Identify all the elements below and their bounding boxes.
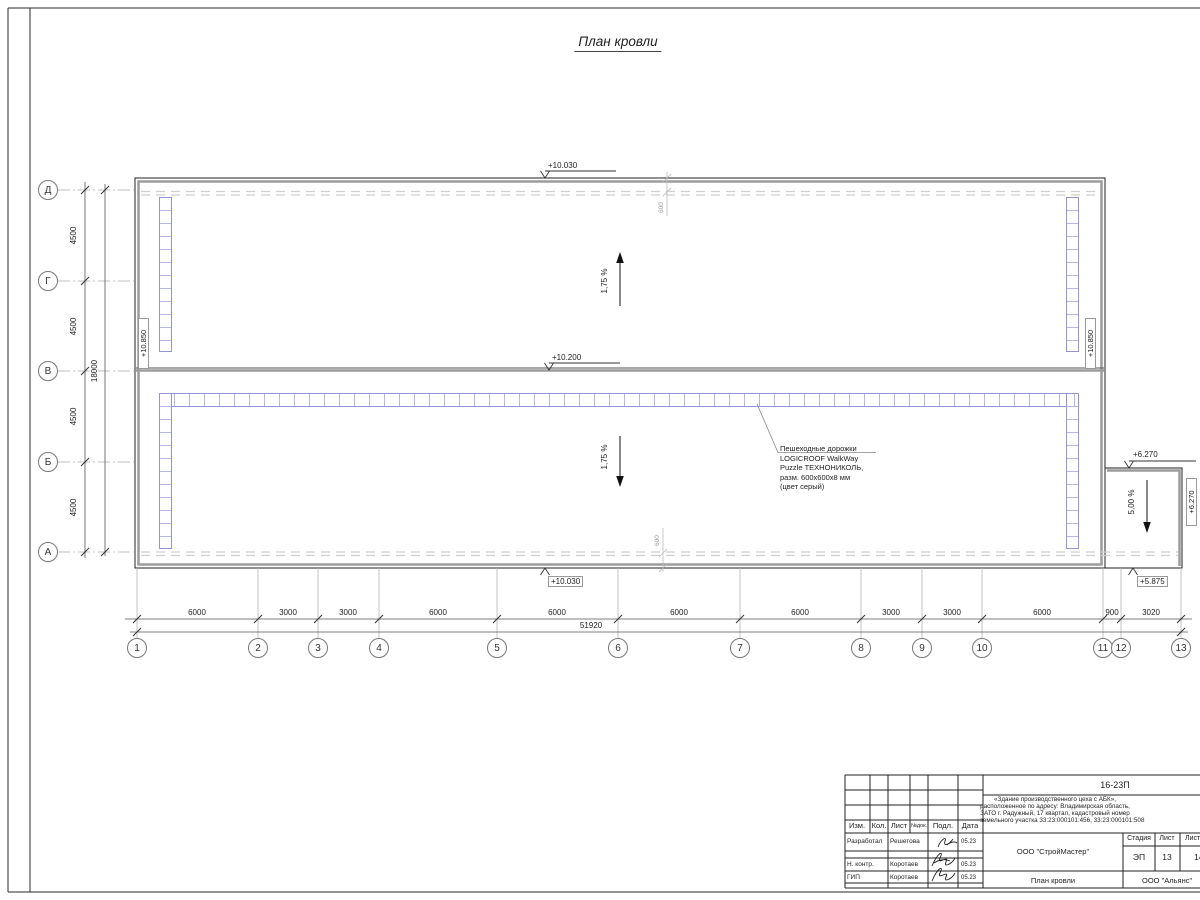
project-description: «Здание производственного цеха с АБК», р… bbox=[980, 796, 1130, 824]
elevation-label-bottom: +10.030 bbox=[548, 576, 583, 587]
tb-date: 05.23 bbox=[961, 839, 976, 845]
grid-bubble-b: Б bbox=[38, 452, 58, 472]
tb-role: ГИП bbox=[847, 874, 860, 881]
walkway-strip-lower-left bbox=[159, 393, 172, 549]
grid-bubble-a: А bbox=[38, 542, 58, 562]
annotation-line: LOGICROOF WalkWay bbox=[780, 454, 863, 464]
grid-bubble-9: 9 bbox=[912, 638, 932, 658]
dimension-label: 6000 bbox=[188, 608, 206, 617]
elevation-label-right: +10.850 bbox=[1085, 318, 1096, 369]
tb-sheet-title: План кровли bbox=[1031, 876, 1075, 885]
tb-header-ndoc: №док. bbox=[911, 823, 927, 829]
grid-bubble-3: 3 bbox=[308, 638, 328, 658]
tb-org: ООО "СтройМастер" bbox=[1017, 847, 1089, 856]
tb-date: 05.23 bbox=[961, 875, 976, 881]
tb-role: Разработал bbox=[847, 838, 882, 845]
grid-bubble-g: Г bbox=[38, 271, 58, 291]
tb-sheet-value: 13 bbox=[1162, 852, 1171, 862]
signature-korotaev-1 bbox=[932, 853, 955, 866]
walkway-strip-upper-left bbox=[159, 197, 172, 352]
grid-bubble-v: В bbox=[38, 361, 58, 381]
dimension-label: 6000 bbox=[429, 608, 447, 617]
elevation-label-ridge: +10.200 bbox=[552, 353, 581, 362]
tb-name: Решетова bbox=[890, 838, 920, 845]
grid-bubble-1: 1 bbox=[127, 638, 147, 658]
slope-label-annex: 5,00 % bbox=[1127, 481, 1136, 523]
grid-bubble-11: 11 bbox=[1093, 638, 1113, 658]
tb-sheets-value: 14 bbox=[1194, 852, 1200, 862]
grid-bubble-d: Д bbox=[38, 180, 58, 200]
tb-header-list: Лист bbox=[891, 821, 907, 830]
grid-bubble-8: 8 bbox=[851, 638, 871, 658]
grid-bubble-6: 6 bbox=[608, 638, 628, 658]
page-title: План кровли bbox=[574, 34, 661, 52]
walkway-annotation: Пешеходные дорожки LOGICROOF WalkWay Puz… bbox=[780, 444, 863, 492]
dimension-label: 4500 bbox=[69, 394, 78, 439]
dimension-label: 4500 bbox=[69, 213, 78, 258]
grid-bubble-4: 4 bbox=[369, 638, 389, 658]
dimension-label: 6000 bbox=[670, 608, 688, 617]
tb-sheets-label: Листов bbox=[1185, 835, 1200, 842]
dimension-label: 3000 bbox=[882, 608, 900, 617]
walkway-strip-lower-horizontal bbox=[159, 393, 1079, 407]
dimension-label: 6000 bbox=[548, 608, 566, 617]
grid-bubble-10: 10 bbox=[972, 638, 992, 658]
grid-bubble-13: 13 bbox=[1171, 638, 1191, 658]
grid-bubble-2: 2 bbox=[248, 638, 268, 658]
signature-korotaev-2 bbox=[932, 868, 955, 881]
annotation-line: Puzzle ТЕХНОНИКОЛЬ, bbox=[780, 463, 863, 473]
grid-bubble-12: 12 bbox=[1111, 638, 1131, 658]
tb-stage-label: Стадия bbox=[1127, 835, 1151, 842]
signature-reshetova bbox=[938, 839, 957, 847]
walkway-strip-lower-right bbox=[1066, 393, 1079, 549]
dimension-total-label: 18000 bbox=[90, 346, 99, 396]
roof-plan-sheet: План кровли 1 2 3 4 5 6 7 8 9 10 11 12 1… bbox=[0, 0, 1200, 900]
tb-date: 05.23 bbox=[961, 862, 976, 868]
dimension-label: 900 bbox=[1105, 608, 1118, 617]
elevation-label-annex-bottom: +5.875 bbox=[1137, 576, 1168, 587]
tb-header-podp: Подл. bbox=[933, 821, 953, 830]
tb-name: Коротаев bbox=[890, 861, 918, 868]
dimension-total-label: 51920 bbox=[580, 621, 602, 630]
dimension-label: 3020 bbox=[1142, 608, 1160, 617]
tb-client: ООО "Альянс" bbox=[1142, 876, 1192, 885]
dimension-label: 4500 bbox=[69, 304, 78, 349]
tb-name: Коротаев bbox=[890, 874, 918, 881]
parapet-dim-label: 600 bbox=[654, 532, 661, 549]
doc-number: 16-23П bbox=[1100, 780, 1130, 790]
parapet-dim-label: 600 bbox=[658, 199, 665, 216]
dimension-label: 4500 bbox=[69, 485, 78, 530]
elevation-label-annex-top: +6.270 bbox=[1133, 450, 1158, 459]
dimension-label: 6000 bbox=[791, 608, 809, 617]
grid-bubble-7: 7 bbox=[730, 638, 750, 658]
slope-label-lower: 1,75 % bbox=[600, 435, 609, 479]
tb-stage-value: ЭП bbox=[1133, 852, 1145, 862]
tb-sheet-label: Лист bbox=[1159, 835, 1174, 842]
dimension-label: 3000 bbox=[943, 608, 961, 617]
annotation-line: разм. 600х600х8 мм bbox=[780, 473, 863, 483]
annotation-line: Пешеходные дорожки bbox=[780, 444, 863, 454]
dimension-label: 6000 bbox=[1033, 608, 1051, 617]
annotation-line: (цвет серый) bbox=[780, 482, 863, 492]
slope-label-upper: 1,75 % bbox=[600, 258, 609, 304]
elevation-label-top: +10.030 bbox=[548, 161, 577, 170]
grid-bubble-5: 5 bbox=[487, 638, 507, 658]
tb-header-data: Дата bbox=[962, 821, 979, 830]
dimension-label: 3000 bbox=[279, 608, 297, 617]
dimension-label: 3000 bbox=[339, 608, 357, 617]
tb-header-kol: Кол. bbox=[872, 821, 887, 830]
tb-role: Н. контр. bbox=[847, 861, 874, 868]
walkway-strip-upper-right bbox=[1066, 197, 1079, 352]
tb-header-izm: Изм. bbox=[849, 821, 865, 830]
elevation-label-annex-right: +6.270 bbox=[1186, 478, 1197, 526]
elevation-label-left: +10.850 bbox=[138, 318, 149, 369]
